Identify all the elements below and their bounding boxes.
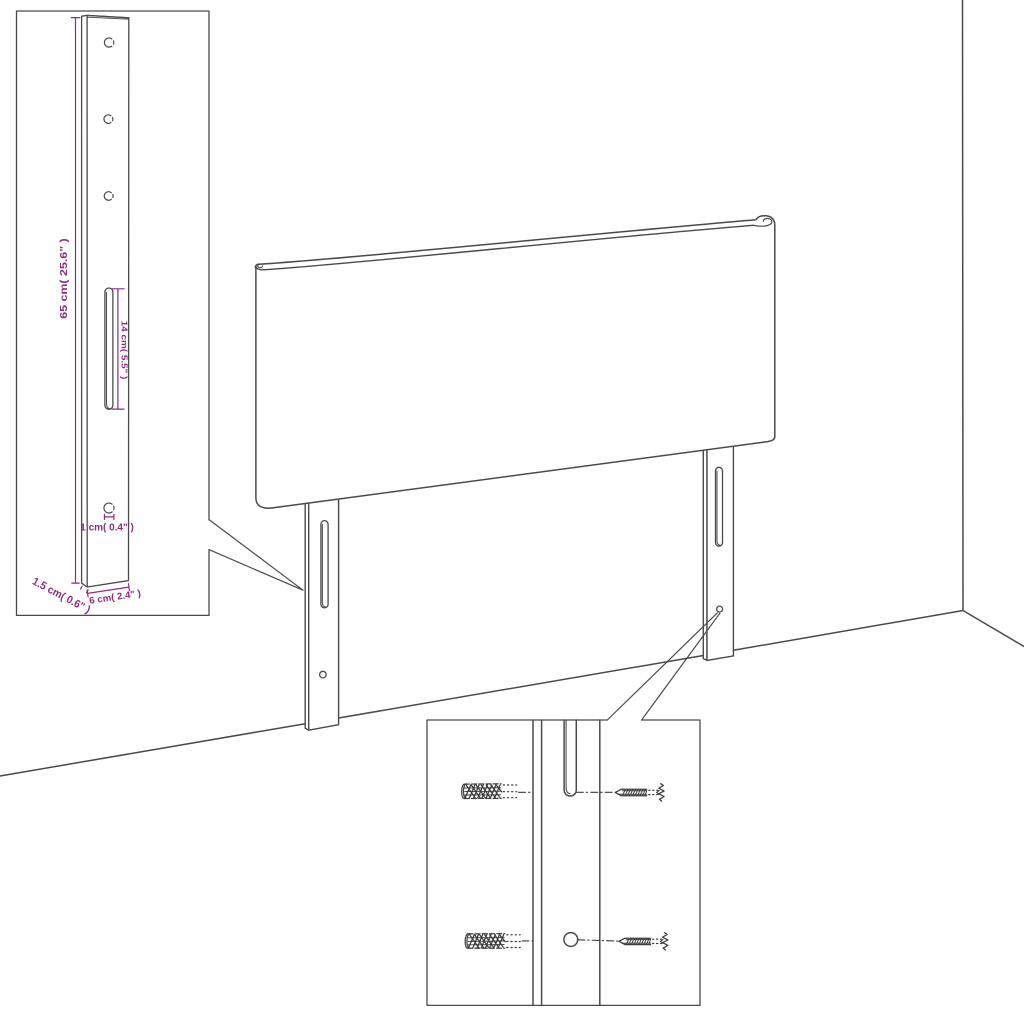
svg-text:1 cm( 0.4" ): 1 cm( 0.4" ) [80, 523, 134, 534]
svg-text:65 cm( 25.6" ): 65 cm( 25.6" ) [58, 238, 70, 319]
svg-text:14 cm( 5.5" ): 14 cm( 5.5" ) [120, 321, 129, 380]
svg-text:1.5 cm( 0.6" ): 1.5 cm( 0.6" ) [30, 576, 92, 617]
svg-text:6 cm( 2.4" ): 6 cm( 2.4" ) [89, 588, 142, 607]
